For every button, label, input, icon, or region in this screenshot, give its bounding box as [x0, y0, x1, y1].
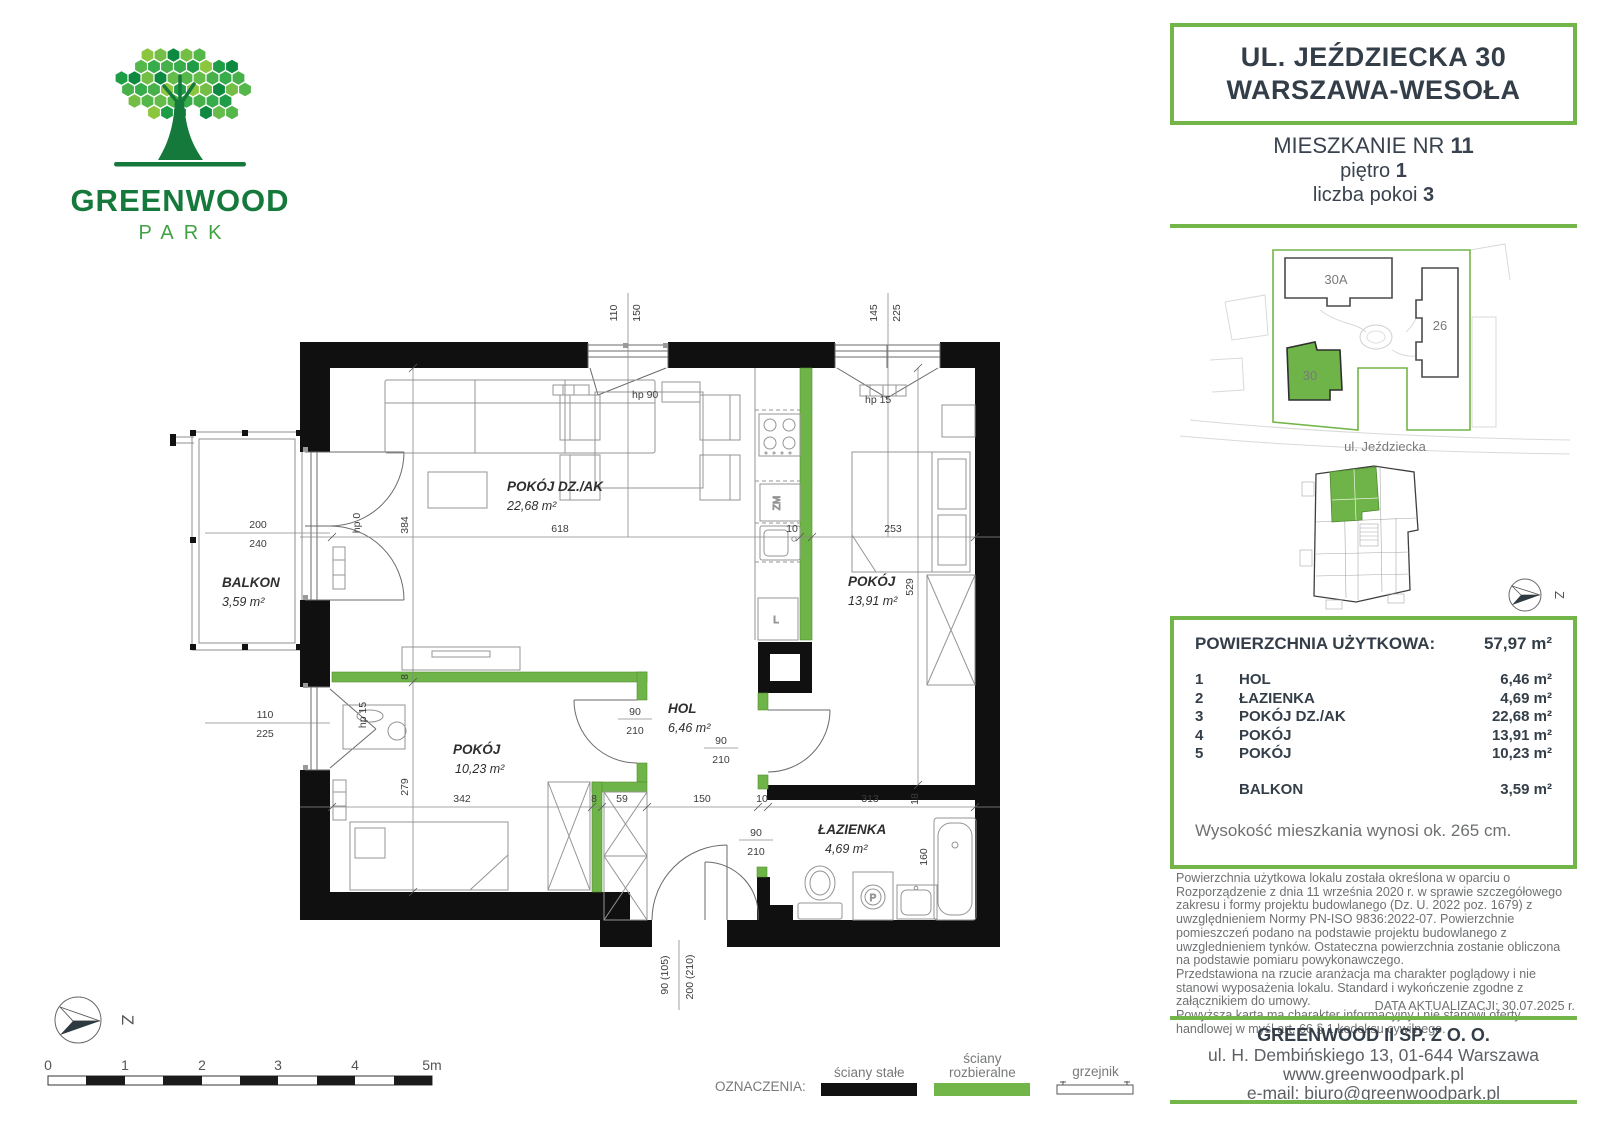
- row-area: 3,59 m²: [1500, 781, 1552, 800]
- dim-seg18: 18: [909, 793, 921, 805]
- company-website: www.greenwoodpark.pl: [1170, 1065, 1577, 1084]
- row-area: 6,46 m²: [1500, 671, 1552, 690]
- tree-leaf-hexagon: [129, 94, 141, 108]
- scale-tick-1: 1: [121, 1057, 129, 1073]
- compass-letter: Z: [118, 1015, 137, 1025]
- tree-leaf-hexagon: [213, 60, 225, 74]
- tree-leaf-hexagon: [168, 48, 180, 62]
- address-header-box: UL. JEŹDZIECKA 30 WARSZAWA-WESOŁA: [1170, 23, 1577, 125]
- fridge-icon: L: [758, 598, 798, 640]
- unit-label: MIESZKANIE NR: [1273, 133, 1444, 158]
- floor-overview-mini: [1296, 462, 1444, 614]
- building-26-label: 26: [1433, 318, 1447, 333]
- door-bathroom-icon: [705, 862, 758, 920]
- tree-leaf-hexagon: [233, 71, 245, 85]
- dim-small-width: 342: [453, 793, 471, 805]
- floor-line: piętro 1: [1170, 159, 1577, 183]
- greenwood-park-logo: GREENWOOD PARK: [55, 42, 305, 245]
- demountable-walls: [332, 368, 812, 892]
- legend-label: ściany stałe: [834, 1066, 905, 1080]
- dim-door1-h: 210: [626, 725, 644, 737]
- dim-door3-h: 210: [747, 846, 765, 858]
- tree-leaf-hexagon: [135, 60, 147, 74]
- toilet-icon: [798, 866, 842, 919]
- demountable-wall-swatch: [934, 1083, 1030, 1096]
- dim-door2-w: 90: [715, 735, 727, 747]
- dim-seg150: 150: [693, 793, 711, 805]
- tree-leaf-hexagon: [181, 71, 193, 85]
- dim-entry-h: 200 (210): [684, 955, 696, 1000]
- table-row: 5 POKÓJ 10,23 m²: [1195, 745, 1552, 764]
- building-30A-label: 30A: [1324, 272, 1347, 287]
- tree-leaf-hexagon: [142, 94, 154, 108]
- tree-leaf-hexagon: [207, 94, 219, 108]
- dim-window-bedroom-b: 225: [891, 304, 903, 322]
- disclaimer-paragraph: Powierzchnia użytkowa lokalu została okr…: [1176, 872, 1574, 968]
- row-area: 10,23 m²: [1492, 745, 1552, 764]
- compass-letter: Z: [1552, 591, 1567, 599]
- row-no: 3: [1195, 708, 1239, 727]
- wardrobe-small-room-icon: [548, 782, 590, 890]
- tree-leaf-hexagon: [194, 94, 206, 108]
- row-name: POKÓJ DZ./AK: [1239, 708, 1492, 727]
- address-line2: WARSZAWA-WESOŁA: [1174, 74, 1573, 107]
- divider-footer-bottom: [1170, 1100, 1577, 1104]
- tree-leaf-hexagon: [161, 106, 173, 120]
- plan-legend: OZNACZENIA: ściany stałe ściany rozbiera…: [715, 1046, 1145, 1096]
- scale-tick-3: 3: [274, 1057, 282, 1073]
- row-name: ŁAZIENKA: [1239, 690, 1500, 709]
- room-hall-area: 6,46 m²: [668, 721, 711, 735]
- scale-tick-4: 4: [351, 1057, 359, 1073]
- area-table-title: POWIERZCHNIA UŻYTKOWA:: [1195, 634, 1435, 654]
- rooms-value: 3: [1423, 184, 1434, 206]
- tree-leaf-hexagon: [148, 106, 160, 120]
- tree-leaf-hexagon: [213, 83, 225, 97]
- site-plan: 30A 26 30 ul. Jeździecka: [1170, 240, 1577, 455]
- solid-wall-swatch: [821, 1083, 917, 1096]
- dim-bedroom-height: 529: [904, 578, 916, 596]
- scale-labels: 0 1 2 3 4 5m: [44, 1057, 442, 1073]
- divider-top: [1170, 224, 1577, 228]
- dim-balcony-door-a: 200: [249, 519, 267, 531]
- dim-window-small-b: 225: [256, 728, 274, 740]
- tree-leaf-hexagon: [155, 71, 167, 85]
- site-roundabout: [1360, 325, 1392, 349]
- tree-leaf-hexagon: [226, 60, 238, 74]
- tree-leaf-hexagon: [142, 48, 154, 62]
- tree-leaf-hexagon: [148, 83, 160, 97]
- site-roundabout-inner: [1367, 331, 1385, 343]
- rooms-label: liczba pokoi: [1313, 184, 1418, 206]
- washing-machine-icon: P: [853, 872, 893, 920]
- fridge-label: L: [773, 615, 779, 626]
- dim-hp-bedroom: hp 15: [865, 394, 891, 406]
- row-name: HOL: [1239, 671, 1500, 690]
- room-bedroom-area: 13,91 m²: [848, 594, 898, 608]
- radiator-icon: [1055, 1079, 1135, 1096]
- tree-leaf-hexagon: [116, 71, 128, 85]
- dim-window-living-a: 110: [608, 304, 620, 321]
- row-no: 4: [1195, 727, 1239, 746]
- radiator-small-room-icon: [333, 780, 346, 820]
- legend-label: grzejnik: [1072, 1065, 1119, 1079]
- row-no: 1: [1195, 671, 1239, 690]
- tree-leaf-hexagon: [142, 71, 154, 85]
- room-small-name: POKÓJ: [453, 742, 501, 757]
- unit-number-line: MIESZKANIE NR 11: [1170, 133, 1577, 159]
- table-row-balcony: BALKON 3,59 m²: [1195, 781, 1552, 800]
- bath-sink-icon: [897, 885, 937, 919]
- row-area: 13,91 m²: [1492, 727, 1552, 746]
- room-living-area: 22,68 m²: [506, 499, 557, 513]
- tree-leaf-hexagon: [213, 106, 225, 120]
- compass-plan: Z: [48, 990, 143, 1052]
- door-entrance-icon: [652, 845, 727, 920]
- tree-leaf-hexagon: [194, 48, 206, 62]
- tree-leaf-hexagon: [155, 94, 167, 108]
- tree-leaf-hexagon: [220, 71, 232, 85]
- dishwasher-label: ZM: [772, 496, 783, 510]
- row-no: 2: [1195, 690, 1239, 709]
- tree-leaf-hexagon: [148, 60, 160, 74]
- dim-hp-living: hp 90: [632, 389, 658, 401]
- room-living-name: POKÓJ DZ./AK: [507, 479, 604, 494]
- dishwasher-icon: ZM: [760, 484, 800, 521]
- table-row: 4 POKÓJ 13,91 m²: [1195, 727, 1552, 746]
- height-note: Wysokość mieszkania wynosi ok. 265 cm.: [1195, 821, 1552, 841]
- tree-leaf-hexagon: [122, 83, 134, 97]
- bathtub-icon: [934, 818, 976, 920]
- tree-ground-line: [114, 162, 246, 167]
- tree-leaf-hexagon: [220, 94, 232, 108]
- table-row: 3 POKÓJ DZ./AK 22,68 m²: [1195, 708, 1552, 727]
- tree-leaf-hexagon: [187, 60, 199, 74]
- unit-info: MIESZKANIE NR 11 piętro 1 liczba pokoi 3: [1170, 133, 1577, 207]
- tree-leaf-hexagon: [135, 83, 147, 97]
- row-no: [1195, 781, 1239, 800]
- kitchen-fixtures: ZM L: [755, 368, 800, 640]
- tree-leaf-hexagon: [200, 83, 212, 97]
- room-balcony-name: BALKON: [222, 575, 280, 590]
- room-bedroom-name: POKÓJ: [848, 574, 896, 589]
- stove-icon: [759, 414, 800, 456]
- windows: [303, 343, 940, 770]
- tree-leaf-hexagon: [194, 71, 206, 85]
- dim-entry-w: 90 (105): [659, 955, 671, 994]
- tree-leaf-hexagon: [161, 60, 173, 74]
- room-small-area: 10,23 m²: [455, 762, 505, 776]
- balcony-railing: [190, 430, 302, 650]
- scale-bar: 0 1 2 3 4 5m: [40, 1056, 450, 1096]
- update-date: DATA AKTUALIZACJI: 30.07.2025 r.: [1170, 999, 1575, 1013]
- table-row: 2 ŁAZIENKA 4,69 m²: [1195, 690, 1552, 709]
- divider-footer-top: [1170, 1016, 1577, 1020]
- tree-leaf-hexagon: [181, 48, 193, 62]
- wardrobe-bedroom-icon: [927, 575, 975, 685]
- compass-sidebar: Z: [1502, 572, 1572, 622]
- tree-leaf-hexagon: [174, 60, 186, 74]
- dim-door2-h: 210: [712, 754, 730, 766]
- street-label: ul. Jeździecka: [1344, 439, 1426, 454]
- solid-walls: [300, 342, 1000, 947]
- scale-tick-2: 2: [198, 1057, 206, 1073]
- row-name: POKÓJ: [1239, 745, 1492, 764]
- room-balcony-area: 3,59 m²: [222, 595, 265, 609]
- unit-value: 11: [1451, 133, 1474, 158]
- tree-leaf-hexagon: [207, 71, 219, 85]
- dim-window-bedroom-a: 145: [868, 304, 880, 322]
- dim-seg59: 59: [616, 793, 628, 805]
- dim-small-height: 279: [399, 778, 411, 796]
- address-line1: UL. JEŹDZIECKA 30: [1174, 41, 1573, 74]
- tree-logo-icon: [90, 42, 270, 172]
- tree-leaf-hexagon: [129, 71, 141, 85]
- dim-g2: 8: [591, 793, 597, 805]
- dim-seg10a: 10: [786, 523, 798, 535]
- railing-posts: [190, 430, 302, 650]
- dim-seg313: 313: [861, 793, 879, 805]
- area-table-total: 57,97 m²: [1484, 634, 1552, 654]
- area-table: POWIERZCHNIA UŻYTKOWA: 57,97 m² 1 HOL 6,…: [1170, 616, 1577, 869]
- row-area: 22,68 m²: [1492, 708, 1552, 727]
- tree-leaf-hexagon: [226, 83, 238, 97]
- tree-leaf-hexagon: [226, 106, 238, 120]
- company-name: GREENWOOD II SP. Z O. O.: [1170, 1024, 1577, 1046]
- row-name: BALKON: [1239, 781, 1500, 800]
- legend-item-radiator: grzejnik: [1046, 1065, 1145, 1096]
- building-30-label: 30: [1303, 368, 1317, 383]
- door-hall-bedroom-icon: [768, 710, 830, 772]
- dim-hp-balcony: hp 0: [351, 513, 363, 534]
- legend-label: ściany rozbieralne: [933, 1052, 1032, 1080]
- brand-subname: PARK: [55, 222, 305, 245]
- dim-balcony-door-b: 240: [249, 538, 267, 550]
- dim-door1-w: 90: [629, 706, 641, 718]
- dim-hp-small: hp 15: [357, 702, 369, 728]
- dim-door3-w: 90: [750, 827, 762, 839]
- tree-leaf-hexagon: [168, 71, 180, 85]
- window-bedroom-icon: [835, 343, 940, 398]
- scale-tick-0: 0: [44, 1057, 52, 1073]
- dim-tub: 160: [918, 848, 930, 866]
- row-no: 5: [1195, 745, 1239, 764]
- table-row: 1 HOL 6,46 m²: [1195, 671, 1552, 690]
- dimension-ticks: [328, 364, 979, 896]
- floor-value: 1: [1396, 160, 1407, 182]
- row-area: 4,69 m²: [1500, 690, 1552, 709]
- legend-item-demountable-walls: ściany rozbieralne: [933, 1052, 1032, 1096]
- dim-living-width: 618: [551, 523, 569, 535]
- room-hall-name: HOL: [668, 701, 697, 716]
- scale-tick-5m: 5m: [422, 1057, 441, 1073]
- company-address: ul. H. Dembińskiego 13, 01-644 Warszawa: [1170, 1046, 1577, 1065]
- dim-window-small-a: 110: [257, 709, 274, 721]
- rooms-line: liczba pokoi 3: [1170, 183, 1577, 207]
- room-bathroom-name: ŁAZIENKA: [817, 822, 886, 837]
- tree-leaf-hexagon: [239, 83, 251, 97]
- furniture-bedroom: [852, 385, 975, 685]
- row-name: POKÓJ: [1239, 727, 1492, 746]
- dim-window-living-b: 150: [631, 304, 643, 322]
- legend-title: OZNACZENIA:: [715, 1079, 806, 1094]
- shaft-opening: [770, 654, 800, 681]
- apartment-card-page: GREENWOOD PARK: [0, 0, 1600, 1131]
- dim-g1: 8: [399, 674, 411, 680]
- area-table-header: POWIERZCHNIA UŻYTKOWA: 57,97 m²: [1195, 634, 1552, 654]
- tree-leaf-hexagon: [200, 60, 212, 74]
- washer-label: P: [870, 893, 877, 904]
- dim-living-height: 384: [399, 516, 411, 534]
- floor-label: piętro: [1340, 160, 1390, 182]
- tree-leaf-hexagon: [200, 106, 212, 120]
- apartment-floor-plan: ZM L: [170, 285, 1050, 1025]
- dim-seg10b: 10: [756, 793, 768, 805]
- footer: GREENWOOD II SP. Z O. O. ul. H. Dembińsk…: [1170, 1024, 1577, 1103]
- tree-leaf-hexagon: [155, 48, 167, 62]
- brand-name: GREENWOOD: [55, 183, 305, 219]
- room-bathroom-area: 4,69 m²: [825, 842, 868, 856]
- dim-bed-width: 253: [884, 523, 902, 535]
- legend-item-solid-walls: ściany stałe: [820, 1066, 919, 1096]
